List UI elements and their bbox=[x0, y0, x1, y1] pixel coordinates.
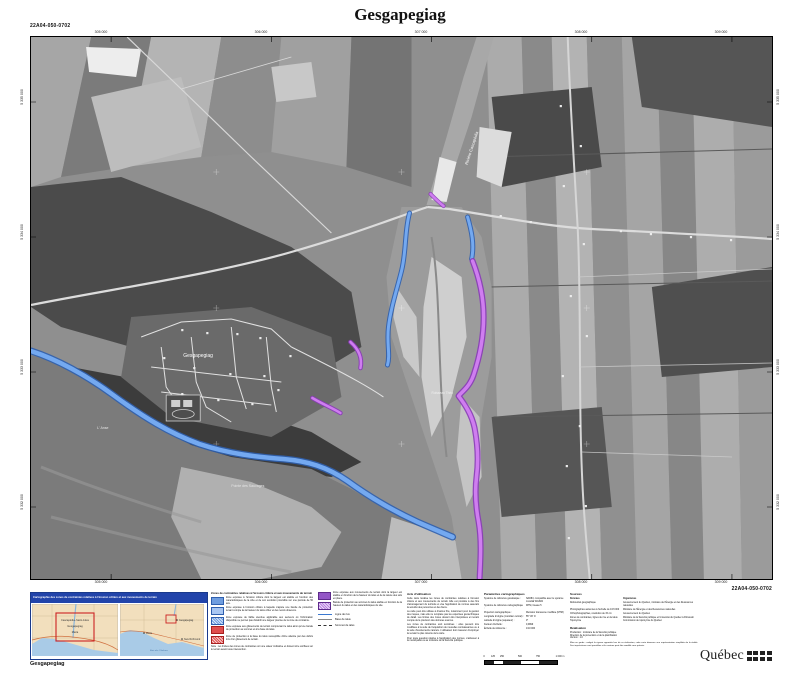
grid-tick-label: 306 000 bbox=[246, 30, 276, 34]
legend-item: Bande de protection au sommet du talus é… bbox=[318, 602, 402, 610]
grid-tick-label: 308 000 bbox=[566, 580, 596, 584]
legend-line-row: Sommet de talus bbox=[318, 624, 402, 627]
grid-tick-label: 5 332 000 bbox=[20, 487, 24, 517]
grid-tick-label: 5 333 000 bbox=[776, 352, 780, 382]
legend-line-row: Ligne de rive bbox=[318, 613, 402, 616]
scale-bar: 0 125 250 500 750 1 000 m bbox=[484, 655, 574, 667]
warning-text: Mise en garde : malgré la rigueur apport… bbox=[570, 642, 698, 647]
legend-item: Zone exposée à l'érosion côtière dont la… bbox=[211, 597, 313, 606]
legend-title: Zones de contraintes relatives à l'érosi… bbox=[211, 592, 313, 595]
slope-base-symbol bbox=[318, 619, 332, 620]
parameters-title: Paramètres cartographiques bbox=[484, 592, 564, 596]
grid-tick-label: 5 333 000 bbox=[20, 352, 24, 382]
grid-tick-label: 5 334 000 bbox=[20, 217, 24, 247]
sheet-code-top-left: 22A04-050-0702 bbox=[30, 23, 70, 29]
stream-label: Ruisseau Théo bbox=[432, 391, 454, 395]
inset-label: Maria bbox=[72, 630, 79, 634]
title-box: Cartographie des zones de contraintes re… bbox=[30, 592, 208, 660]
map-sheet: Gesgapegiag 22A04-050-0702 22A04-050-070… bbox=[0, 0, 800, 686]
grid-tick-label: 307 000 bbox=[406, 30, 436, 34]
legend-symbols: Zone exposée aux mouvements de terrain d… bbox=[318, 592, 402, 629]
movement-zone-swatch bbox=[318, 592, 331, 600]
quebec-wordmark: Québec bbox=[700, 648, 744, 664]
grid-tick-label: 309 000 bbox=[706, 30, 736, 34]
location-inset-left: Cascapédia–Saint-Jules Gesgapegiag Maria bbox=[32, 604, 118, 656]
erosion-protection-swatch bbox=[211, 607, 224, 615]
legend-item: Zone exposée aux mouvements de terrain d… bbox=[318, 592, 402, 601]
page-title: Gesgapegiag bbox=[0, 5, 800, 25]
legend-item: Zone exposée à l'érosion côtière à laque… bbox=[211, 607, 313, 615]
movement-band-swatch bbox=[318, 602, 331, 610]
legend-item: Zone exposée aux glissements de terrain … bbox=[211, 626, 313, 634]
inset-label: Gesgapegiag bbox=[67, 624, 83, 628]
scale-bar-segments bbox=[484, 660, 558, 665]
grid-tick-label: 306 000 bbox=[246, 580, 276, 584]
sources-header-row: Données Organismes bbox=[570, 598, 698, 601]
quebec-flag-icon bbox=[747, 651, 759, 661]
inset-label: Maria bbox=[146, 632, 153, 635]
grid-tick-label: 5 335 000 bbox=[20, 82, 24, 112]
grid-tick-label: 307 000 bbox=[406, 580, 436, 584]
location-inset-right: Gesgapegiag Maria New Richmond Baie des … bbox=[120, 604, 204, 656]
grid-tick-label: 5 334 000 bbox=[776, 217, 780, 247]
erosion-hatched-swatch bbox=[211, 617, 224, 625]
sources-block: Sources Données Organismes Référentiel g… bbox=[570, 592, 698, 650]
sources-row: Zones de contraintes, lignes de rive et … bbox=[570, 617, 698, 620]
quebec-flag-icon bbox=[760, 651, 772, 661]
grid-tick-label: 308 000 bbox=[566, 30, 596, 34]
map-series-title: Cartographie des zones de contraintes re… bbox=[31, 593, 207, 603]
landslide-red-hatched-swatch bbox=[211, 636, 224, 644]
grid-tick-label: 305 000 bbox=[86, 580, 116, 584]
realisation-title: Réalisation bbox=[570, 626, 698, 630]
map-frame: Gesgapegiag Pointe des Sauvages L' Anse … bbox=[30, 36, 773, 580]
point-label: Pointe des Sauvages bbox=[231, 484, 264, 488]
grid-tick-label: 305 000 bbox=[86, 30, 116, 34]
shoreline-symbol bbox=[318, 614, 332, 615]
grid-tick-label: 5 332 000 bbox=[776, 487, 780, 517]
sheet-code-bottom-right: 22A04-050-0702 bbox=[732, 586, 772, 592]
sources-row: ToponymieCommission de toponymie du Québ… bbox=[570, 620, 698, 623]
grid-tick-label: 309 000 bbox=[706, 580, 736, 584]
aerial-photo: Gesgapegiag Pointe des Sauvages L' Anse … bbox=[31, 37, 772, 579]
erosion-zone-swatch bbox=[211, 597, 224, 605]
usage-notice: Avis d'utilisation Cette carte localise … bbox=[407, 592, 479, 645]
sources-row: Orthophotographies, résolution de 15 cmG… bbox=[570, 613, 698, 616]
legend-item: Zone de protection à la base du talus su… bbox=[211, 636, 313, 644]
water-label: Baie des Chaleurs bbox=[150, 650, 169, 652]
sources-title: Sources bbox=[570, 592, 698, 596]
inset-label: Cascapédia–Saint-Jules bbox=[61, 618, 90, 622]
legend-zones: Zones de contraintes relatives à l'érosi… bbox=[211, 592, 313, 651]
footer-map-name: Gesgapegiag bbox=[30, 661, 65, 667]
usage-notice-title: Avis d'utilisation bbox=[407, 592, 479, 596]
anse-label: L' Anse bbox=[97, 426, 108, 430]
landslide-red-swatch bbox=[211, 626, 224, 634]
legend-note: Note : les limites des zones de contrain… bbox=[211, 646, 313, 652]
sources-row: Référentiel géographiqueGouvernement du … bbox=[570, 602, 698, 608]
inset-label: Gesgapegiag bbox=[179, 619, 194, 622]
sources-row: Photographies aériennes à l'échelle de 1… bbox=[570, 609, 698, 612]
grid-tick-label: 5 335 000 bbox=[776, 82, 780, 112]
legend-item: Zone exposée de faible étendue applicabl… bbox=[211, 617, 313, 625]
legend-line-row: Base de talus bbox=[318, 618, 402, 621]
quebec-logo: Québec bbox=[700, 648, 775, 664]
inset-label: New Richmond bbox=[184, 638, 201, 641]
map-parameters: Paramètres cartographiques Système de ré… bbox=[484, 592, 564, 632]
slope-top-symbol bbox=[318, 625, 332, 626]
village-label: Gesgapegiag bbox=[183, 353, 213, 359]
